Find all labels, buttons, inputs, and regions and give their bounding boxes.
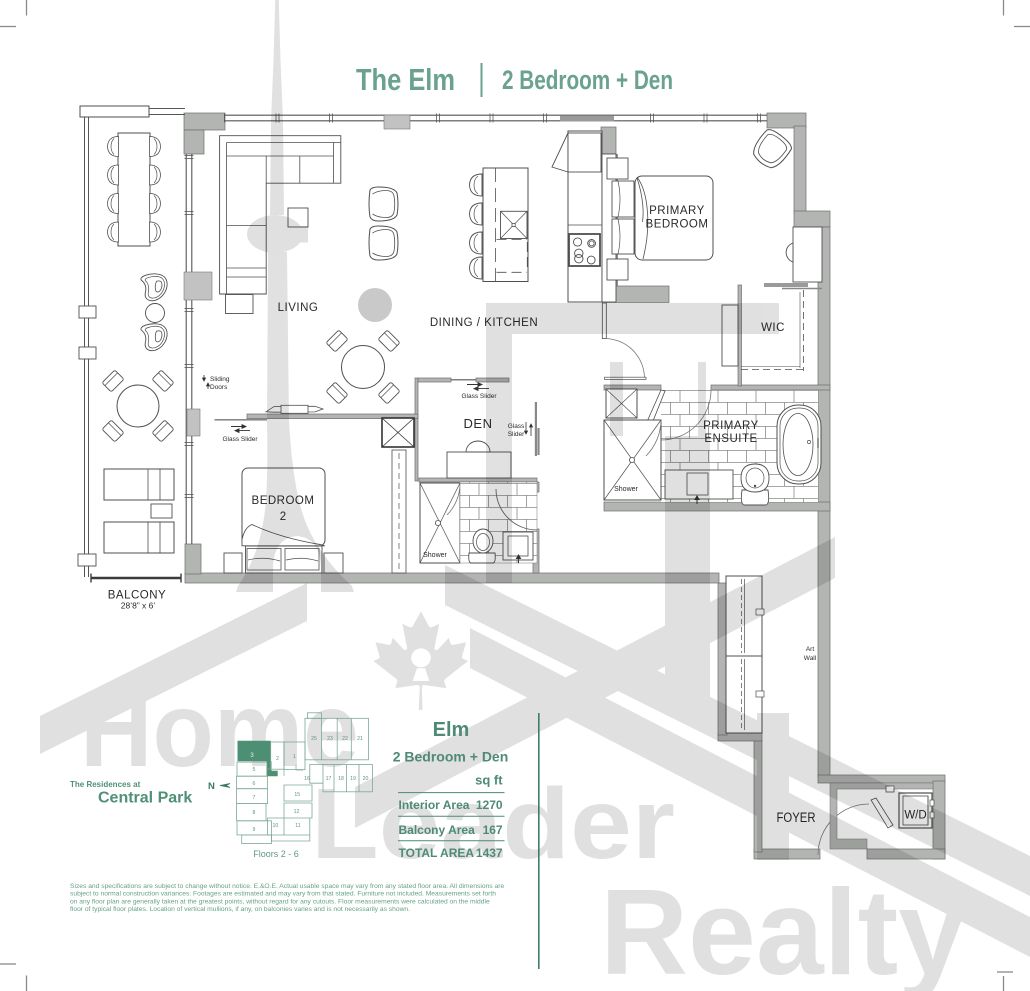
svg-text:2 Bedroom + Den: 2 Bedroom + Den: [502, 65, 673, 95]
svg-text:Interior Area: Interior Area: [399, 798, 470, 812]
svg-text:8: 8: [253, 810, 256, 816]
svg-text:23: 23: [327, 736, 333, 742]
svg-text:N: N: [208, 781, 215, 792]
svg-text:ENSUITE: ENSUITE: [704, 433, 757, 445]
svg-text:Balcony Area: Balcony Area: [399, 823, 476, 837]
svg-text:Sliding: Sliding: [210, 376, 230, 383]
svg-text:12: 12: [294, 809, 300, 815]
svg-text:The Residences at: The Residences at: [70, 780, 141, 789]
svg-text:2: 2: [276, 756, 279, 762]
svg-text:Art: Art: [806, 646, 815, 653]
svg-text:PRIMARY: PRIMARY: [649, 205, 705, 217]
svg-text:floor of typical floor plates.: floor of typical floor plates. Location …: [70, 906, 410, 913]
svg-text:Elm: Elm: [433, 719, 470, 741]
svg-text:BEDROOM: BEDROOM: [646, 219, 709, 231]
svg-text:Sizes and specifications are s: Sizes and specifications are subject to …: [70, 883, 504, 890]
svg-text:9: 9: [253, 827, 256, 833]
svg-text:Shower: Shower: [614, 486, 638, 493]
svg-text:21: 21: [357, 736, 363, 742]
svg-text:Realty: Realty: [600, 864, 966, 991]
svg-text:10: 10: [273, 823, 279, 829]
svg-text:167: 167: [483, 823, 503, 837]
svg-text:11: 11: [295, 823, 300, 829]
svg-text:TOTAL AREA: TOTAL AREA: [399, 846, 475, 860]
svg-text:1: 1: [293, 754, 296, 760]
svg-text:5: 5: [253, 767, 256, 773]
svg-text:25: 25: [311, 736, 317, 742]
svg-text:22: 22: [342, 736, 348, 742]
svg-text:7: 7: [253, 795, 256, 801]
svg-text:18: 18: [338, 776, 344, 782]
svg-text:1270: 1270: [476, 798, 503, 812]
svg-text:2 Bedroom + Den: 2 Bedroom + Den: [393, 749, 509, 765]
svg-text:17: 17: [326, 776, 332, 782]
svg-text:Shower: Shower: [423, 552, 447, 559]
svg-text:Glass Slider: Glass Slider: [222, 436, 258, 443]
svg-text:20: 20: [363, 776, 369, 782]
svg-text:PRIMARY: PRIMARY: [703, 420, 759, 432]
svg-text:1437: 1437: [476, 846, 503, 860]
svg-text:28’8” x 6’: 28’8” x 6’: [121, 601, 156, 611]
svg-text:Central Park: Central Park: [98, 790, 192, 807]
svg-text:16: 16: [304, 776, 310, 782]
svg-text:19: 19: [350, 776, 356, 782]
svg-text:Doors: Doors: [210, 384, 228, 391]
svg-text:Wall: Wall: [804, 655, 817, 662]
svg-text:subject to normal construction: subject to normal construction variances…: [70, 891, 496, 898]
svg-text:sq ft: sq ft: [475, 773, 503, 788]
svg-text:The Elm: The Elm: [356, 63, 455, 97]
svg-text:6: 6: [253, 781, 256, 787]
svg-text:Floors 2 - 6: Floors 2 - 6: [253, 849, 299, 859]
svg-text:15: 15: [294, 792, 300, 798]
svg-text:on any floor plan are generall: on any floor plan are generally taken at…: [70, 898, 490, 905]
